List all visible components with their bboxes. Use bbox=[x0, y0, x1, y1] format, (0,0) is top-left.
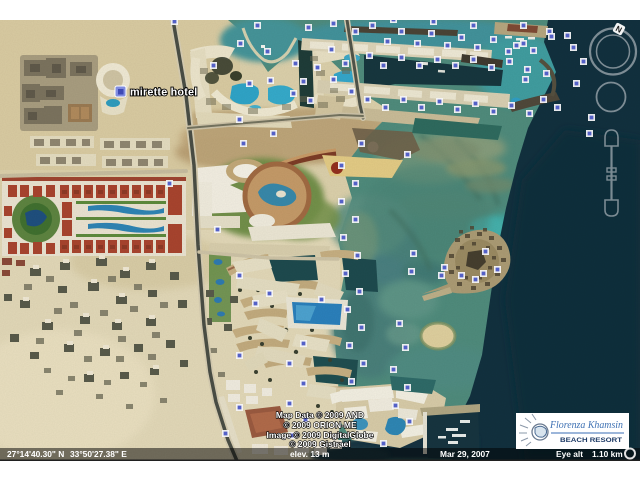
svg-text:Map Data © 2009 AND: Map Data © 2009 AND bbox=[276, 410, 364, 420]
svg-text:© 2009 ORION-ME: © 2009 ORION-ME bbox=[283, 420, 357, 430]
svg-text:© 2009 Gistrael: © 2009 Gistrael bbox=[289, 439, 351, 449]
svg-text:Florenza Khamsin: Florenza Khamsin bbox=[549, 419, 623, 431]
svg-text:33°50'27.38" E: 33°50'27.38" E bbox=[70, 449, 127, 459]
svg-text:elev. 13 m: elev. 13 m bbox=[290, 449, 329, 459]
svg-text:27°14'40.30" N: 27°14'40.30" N bbox=[7, 449, 64, 459]
svg-text:Eye alt: Eye alt bbox=[556, 449, 583, 459]
svg-text:1.10 km: 1.10 km bbox=[592, 449, 623, 459]
svg-text:Mar 29, 2007: Mar 29, 2007 bbox=[440, 449, 490, 459]
svg-text:mirette hotel: mirette hotel bbox=[130, 87, 197, 99]
svg-text:BEACH RESORT: BEACH RESORT bbox=[560, 437, 622, 444]
